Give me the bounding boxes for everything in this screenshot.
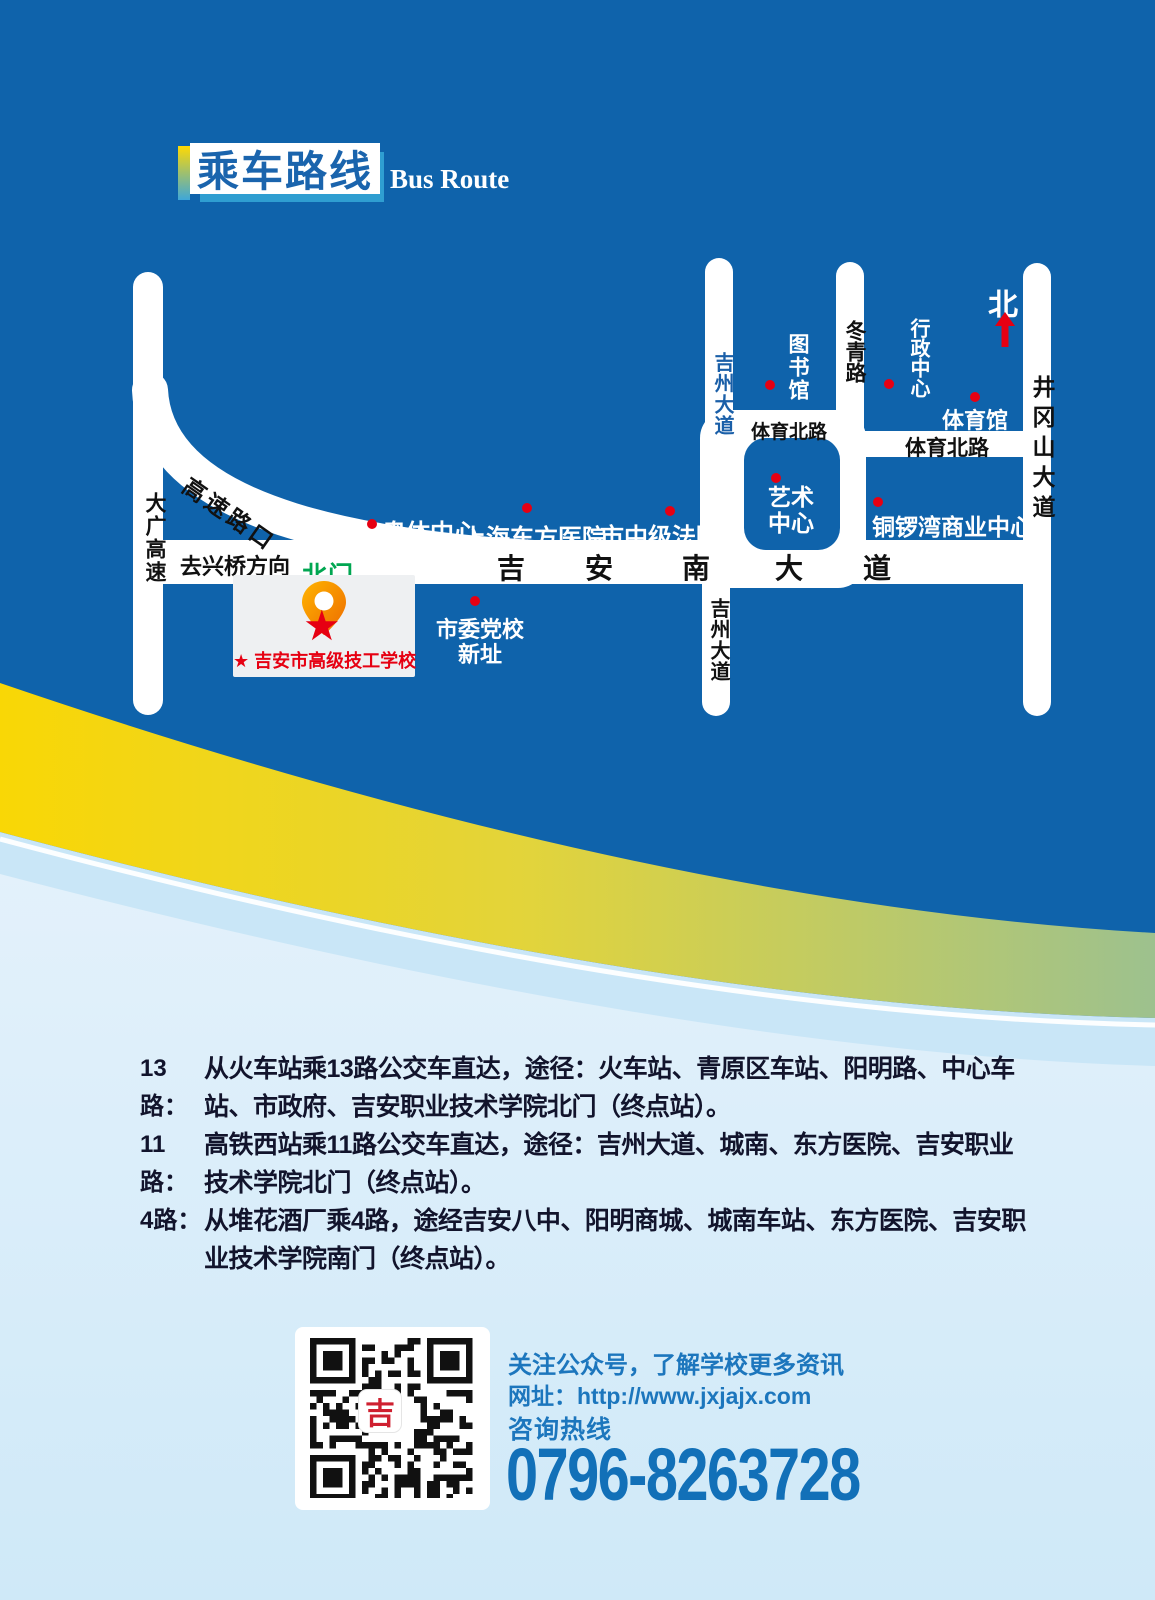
landmark-party-school-line2: 新址 <box>436 637 524 669</box>
follow-account-text: 关注公众号，了解学校更多资讯 <box>508 1345 844 1380</box>
website-line: 网址：http://www.jxjajx.com <box>508 1377 811 1411</box>
bus-route-item: 4路： 从堆花酒厂乘4路，途经吉安八中、阳明商城、城南车站、东方医院、吉安职业技… <box>140 1202 1035 1278</box>
bus-routes-section: 13路： 从火车站乘13路公交车直达，途径：火车站、青原区车站、阳明路、中心车站… <box>140 1050 1035 1278</box>
school-location-box: ★ ★ 吉安市高级技工学校 <box>233 575 415 677</box>
website-url: http://www.jxjajx.com <box>577 1383 811 1409</box>
road-label-daguang-expressway: 大广高速 <box>139 492 169 584</box>
landmark-tongluowan-mall: 铜锣湾商业中心 <box>872 508 1033 542</box>
bus-route-item: 11路： 高铁西站乘11路公交车直达，途径：吉州大道、城南、东方医院、吉安职业技… <box>140 1126 1035 1202</box>
road-label-tiyu-north-east: 体育北路 <box>905 432 989 462</box>
landmark-dot-icon <box>665 506 675 516</box>
road-label-jizhou-ave-north: 吉州大道 <box>708 352 737 436</box>
road-label-jinggangshan-ave: 井冈山大道 <box>1025 375 1059 525</box>
route-description: 从火车站乘13路公交车直达，途径：火车站、青原区车站、阳明路、中心车站、市政府、… <box>204 1050 1035 1126</box>
route-number: 13路： <box>140 1050 204 1126</box>
road-label-jian-south-ave-char: 安 <box>585 547 613 587</box>
star-icon: ★ <box>303 605 341 647</box>
landmark-gymnasium: 体育馆 <box>942 403 1008 435</box>
road-label-jizhou-ave-south: 吉州大道 <box>704 598 733 682</box>
north-arrow-icon <box>995 312 1015 348</box>
page-title: 乘车路线 <box>197 138 373 199</box>
road-label-dongqing-road: 冬青路 <box>839 320 869 383</box>
landmark-art-center: 艺术中心 <box>763 485 819 537</box>
landmark-dot-icon <box>522 503 532 513</box>
landmark-admin-center: 行政中心 <box>904 318 933 398</box>
qr-logo-glyph: 吉 <box>365 1389 395 1433</box>
website-label: 网址： <box>508 1383 577 1409</box>
brochure-page: 乘车路线 Bus Route 大广高速 高速路口 去兴桥方向 北门 吉 安 南 … <box>0 0 1155 1600</box>
landmark-dot-icon <box>470 596 480 606</box>
page-title-box: 乘车路线 <box>190 143 380 194</box>
school-name-label: ★ 吉安市高级技工学校 <box>233 647 415 673</box>
road-label-tiyu-north-west: 体育北路 <box>751 417 827 444</box>
road-label-jian-south-ave-char: 南 <box>682 547 710 587</box>
landmark-dot-icon <box>873 497 883 507</box>
road-label-jian-south-ave-char: 吉 <box>497 547 525 587</box>
road-label-jian-south-ave-char: 大 <box>775 547 803 587</box>
landmark-dot-icon <box>367 519 377 529</box>
route-number: 11路： <box>140 1126 204 1202</box>
landmark-library: 图书馆 <box>782 333 812 402</box>
route-number: 4路： <box>140 1202 204 1240</box>
qr-code: 吉 <box>295 1327 490 1510</box>
landmark-dot-icon <box>970 392 980 402</box>
qr-center-logo: 吉 <box>358 1389 402 1433</box>
road-label-jian-south-ave-char: 道 <box>863 547 891 587</box>
route-description: 高铁西站乘11路公交车直达，途径：吉州大道、城南、东方医院、吉安职业技术学院北门… <box>204 1126 1035 1202</box>
landmark-shanghai-dongfang-hospital: 上海东方医院 <box>462 518 606 553</box>
landmark-intermediate-court: 市中级法院 <box>600 517 720 552</box>
landmark-dot-icon <box>884 379 894 389</box>
landmark-dot-icon <box>765 380 775 390</box>
page-subtitle: Bus Route <box>390 164 509 195</box>
bus-route-item: 13路： 从火车站乘13路公交车直达，途径：火车站、青原区车站、阳明路、中心车站… <box>140 1050 1035 1126</box>
hotline-phone-number: 0796-8263728 <box>506 1432 860 1517</box>
route-description: 从堆花酒厂乘4路，途经吉安八中、阳明商城、城南车站、东方医院、吉安职业技术学院南… <box>204 1202 1035 1278</box>
title-accent-bar <box>178 146 190 200</box>
landmark-dot-icon <box>771 473 781 483</box>
